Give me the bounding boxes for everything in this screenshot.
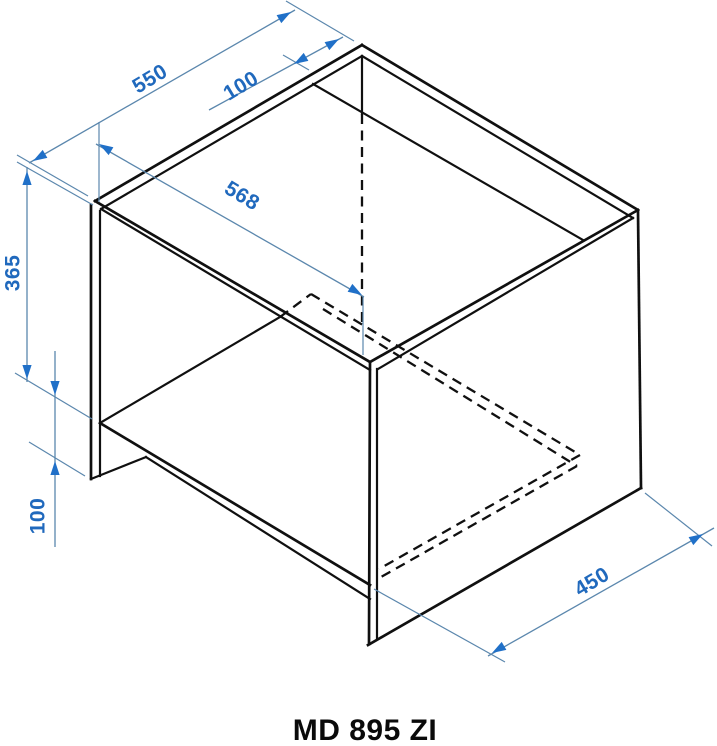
dim-100-top-label: 100 [219, 67, 262, 106]
cabinet-hidden-edges [280, 114, 580, 577]
dim-365-label: 365 [2, 255, 25, 292]
arrowhead [292, 53, 309, 68]
dimension-550: 550 [17, 1, 354, 196]
arrowhead [689, 530, 706, 545]
arrowhead [325, 35, 342, 50]
cabinet-technical-drawing: 550 100 568 365 100 [0, 0, 717, 746]
dim-550-label: 550 [128, 60, 171, 99]
arrowhead [50, 381, 59, 395]
arrowhead [22, 171, 31, 185]
dimension-100-top: 100 [209, 35, 343, 110]
dimension-365: 365 [2, 162, 94, 419]
arrowhead [50, 461, 59, 475]
technical-drawing-page: 550 100 568 365 100 [0, 0, 717, 746]
cabinet-visible-edges [91, 45, 641, 645]
dim-450-label: 450 [570, 563, 613, 602]
arrowhead [31, 150, 48, 165]
arrowhead [277, 8, 294, 23]
arrowhead [22, 365, 31, 379]
dimension-100-bottom: 100 [27, 351, 86, 547]
dim-100-bottom-label: 100 [27, 498, 50, 535]
model-label: MD 895 ZI [293, 714, 438, 746]
dimension-450: 450 [374, 493, 714, 662]
dimension-568: 568 [96, 122, 364, 355]
dim-568-label: 568 [220, 177, 263, 216]
